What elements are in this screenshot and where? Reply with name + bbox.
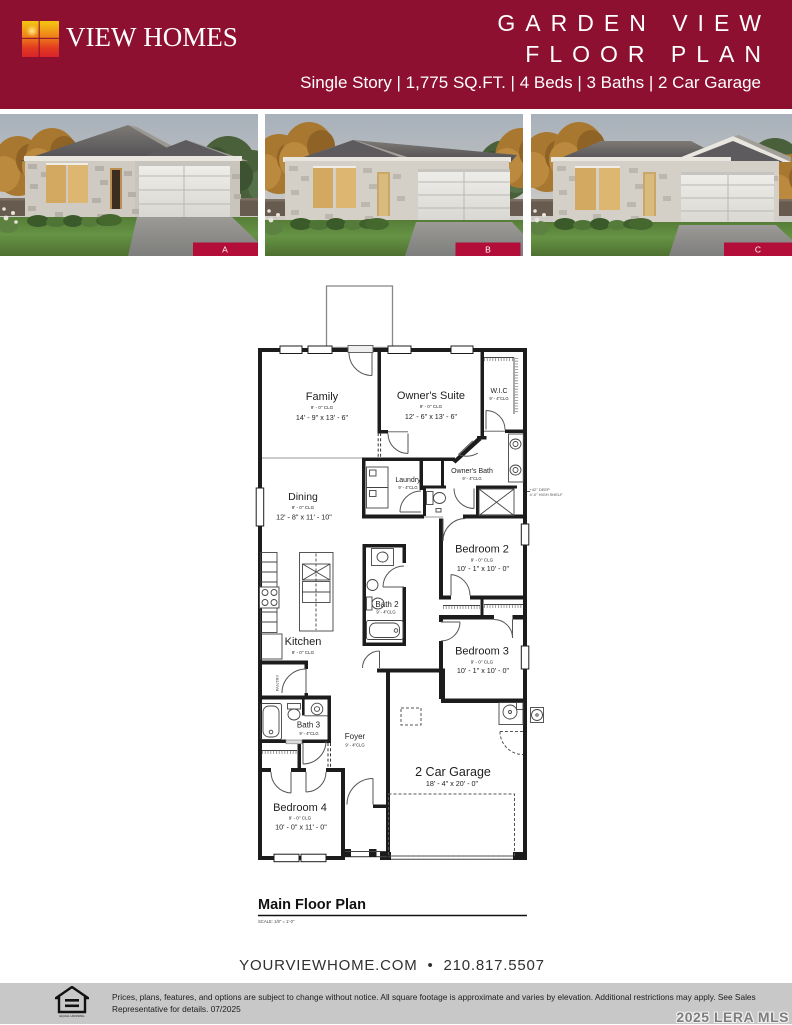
- svg-text:Owner's Suite: Owner's Suite: [397, 390, 465, 402]
- svg-text:Bedroom 2: Bedroom 2: [455, 544, 509, 556]
- svg-text:9' - 4"CLG: 9' - 4"CLG: [376, 610, 395, 615]
- svg-text:A: A: [222, 245, 228, 255]
- svg-text:10' - 1" x 10' - 0": 10' - 1" x 10' - 0": [457, 564, 510, 573]
- svg-text:4'-0" HIGH SHELF: 4'-0" HIGH SHELF: [530, 492, 564, 497]
- svg-text:10' - 0" x 11' - 0": 10' - 0" x 11' - 0": [275, 823, 327, 832]
- svg-text:14' - 9" x 13' - 6": 14' - 9" x 13' - 6": [296, 413, 349, 422]
- svg-text:2 Car Garage: 2 Car Garage: [415, 765, 491, 779]
- svg-text:B: B: [485, 245, 491, 255]
- svg-text:Laundry: Laundry: [395, 477, 421, 484]
- svg-text:9' - 0" CLG: 9' - 0" CLG: [420, 404, 443, 409]
- svg-text:12' - 6" x 13' - 6": 12' - 6" x 13' - 6": [405, 412, 458, 421]
- svg-text:Bedroom 4: Bedroom 4: [273, 802, 327, 814]
- svg-text:9' - 4"CLG: 9' - 4"CLG: [462, 476, 481, 481]
- svg-text:Bath 2: Bath 2: [375, 600, 399, 609]
- svg-text:Dining: Dining: [288, 491, 318, 503]
- svg-text:9' - 0" CLG: 9' - 0" CLG: [471, 660, 494, 665]
- svg-text:Foyer: Foyer: [345, 732, 366, 741]
- svg-text:12' - 8" x 11' - 10": 12' - 8" x 11' - 10": [276, 513, 332, 522]
- svg-text:Bedroom 3: Bedroom 3: [455, 646, 509, 658]
- svg-text:W.I.C: W.I.C: [490, 388, 507, 395]
- svg-text:9' - 4"CLG: 9' - 4"CLG: [489, 396, 508, 401]
- svg-text:9' - 0" CLG: 9' - 0" CLG: [289, 816, 312, 821]
- svg-text:9' - 0" CLG: 9' - 0" CLG: [311, 405, 334, 410]
- svg-text:9' - 0" CLG: 9' - 0" CLG: [292, 505, 315, 510]
- svg-text:9' - 4"CLG: 9' - 4"CLG: [299, 731, 318, 736]
- svg-text:PANTRY: PANTRY: [275, 674, 280, 691]
- svg-text:10' - 1" x 10' - 0": 10' - 1" x 10' - 0": [457, 666, 510, 675]
- svg-text:18' - 4" x 20' - 0": 18' - 4" x 20' - 0": [426, 779, 479, 788]
- svg-text:EQUAL HOUSING: EQUAL HOUSING: [60, 1014, 86, 1018]
- svg-text:C: C: [755, 245, 761, 255]
- svg-text:Owner's Bath: Owner's Bath: [451, 468, 493, 475]
- svg-text:9' - 4"CLG: 9' - 4"CLG: [398, 485, 417, 490]
- svg-text:9' - 4"CLG: 9' - 4"CLG: [345, 743, 364, 748]
- svg-text:Main Floor Plan: Main Floor Plan: [258, 897, 366, 913]
- svg-text:Bath 3: Bath 3: [297, 721, 321, 730]
- svg-text:9' - 0" CLG: 9' - 0" CLG: [471, 558, 494, 563]
- svg-text:Family: Family: [306, 391, 339, 403]
- svg-text:SCALE: 1/8" = 1'-0": SCALE: 1/8" = 1'-0": [258, 919, 295, 924]
- svg-text:Kitchen: Kitchen: [285, 636, 322, 648]
- svg-text:9' - 0" CLG: 9' - 0" CLG: [292, 650, 315, 655]
